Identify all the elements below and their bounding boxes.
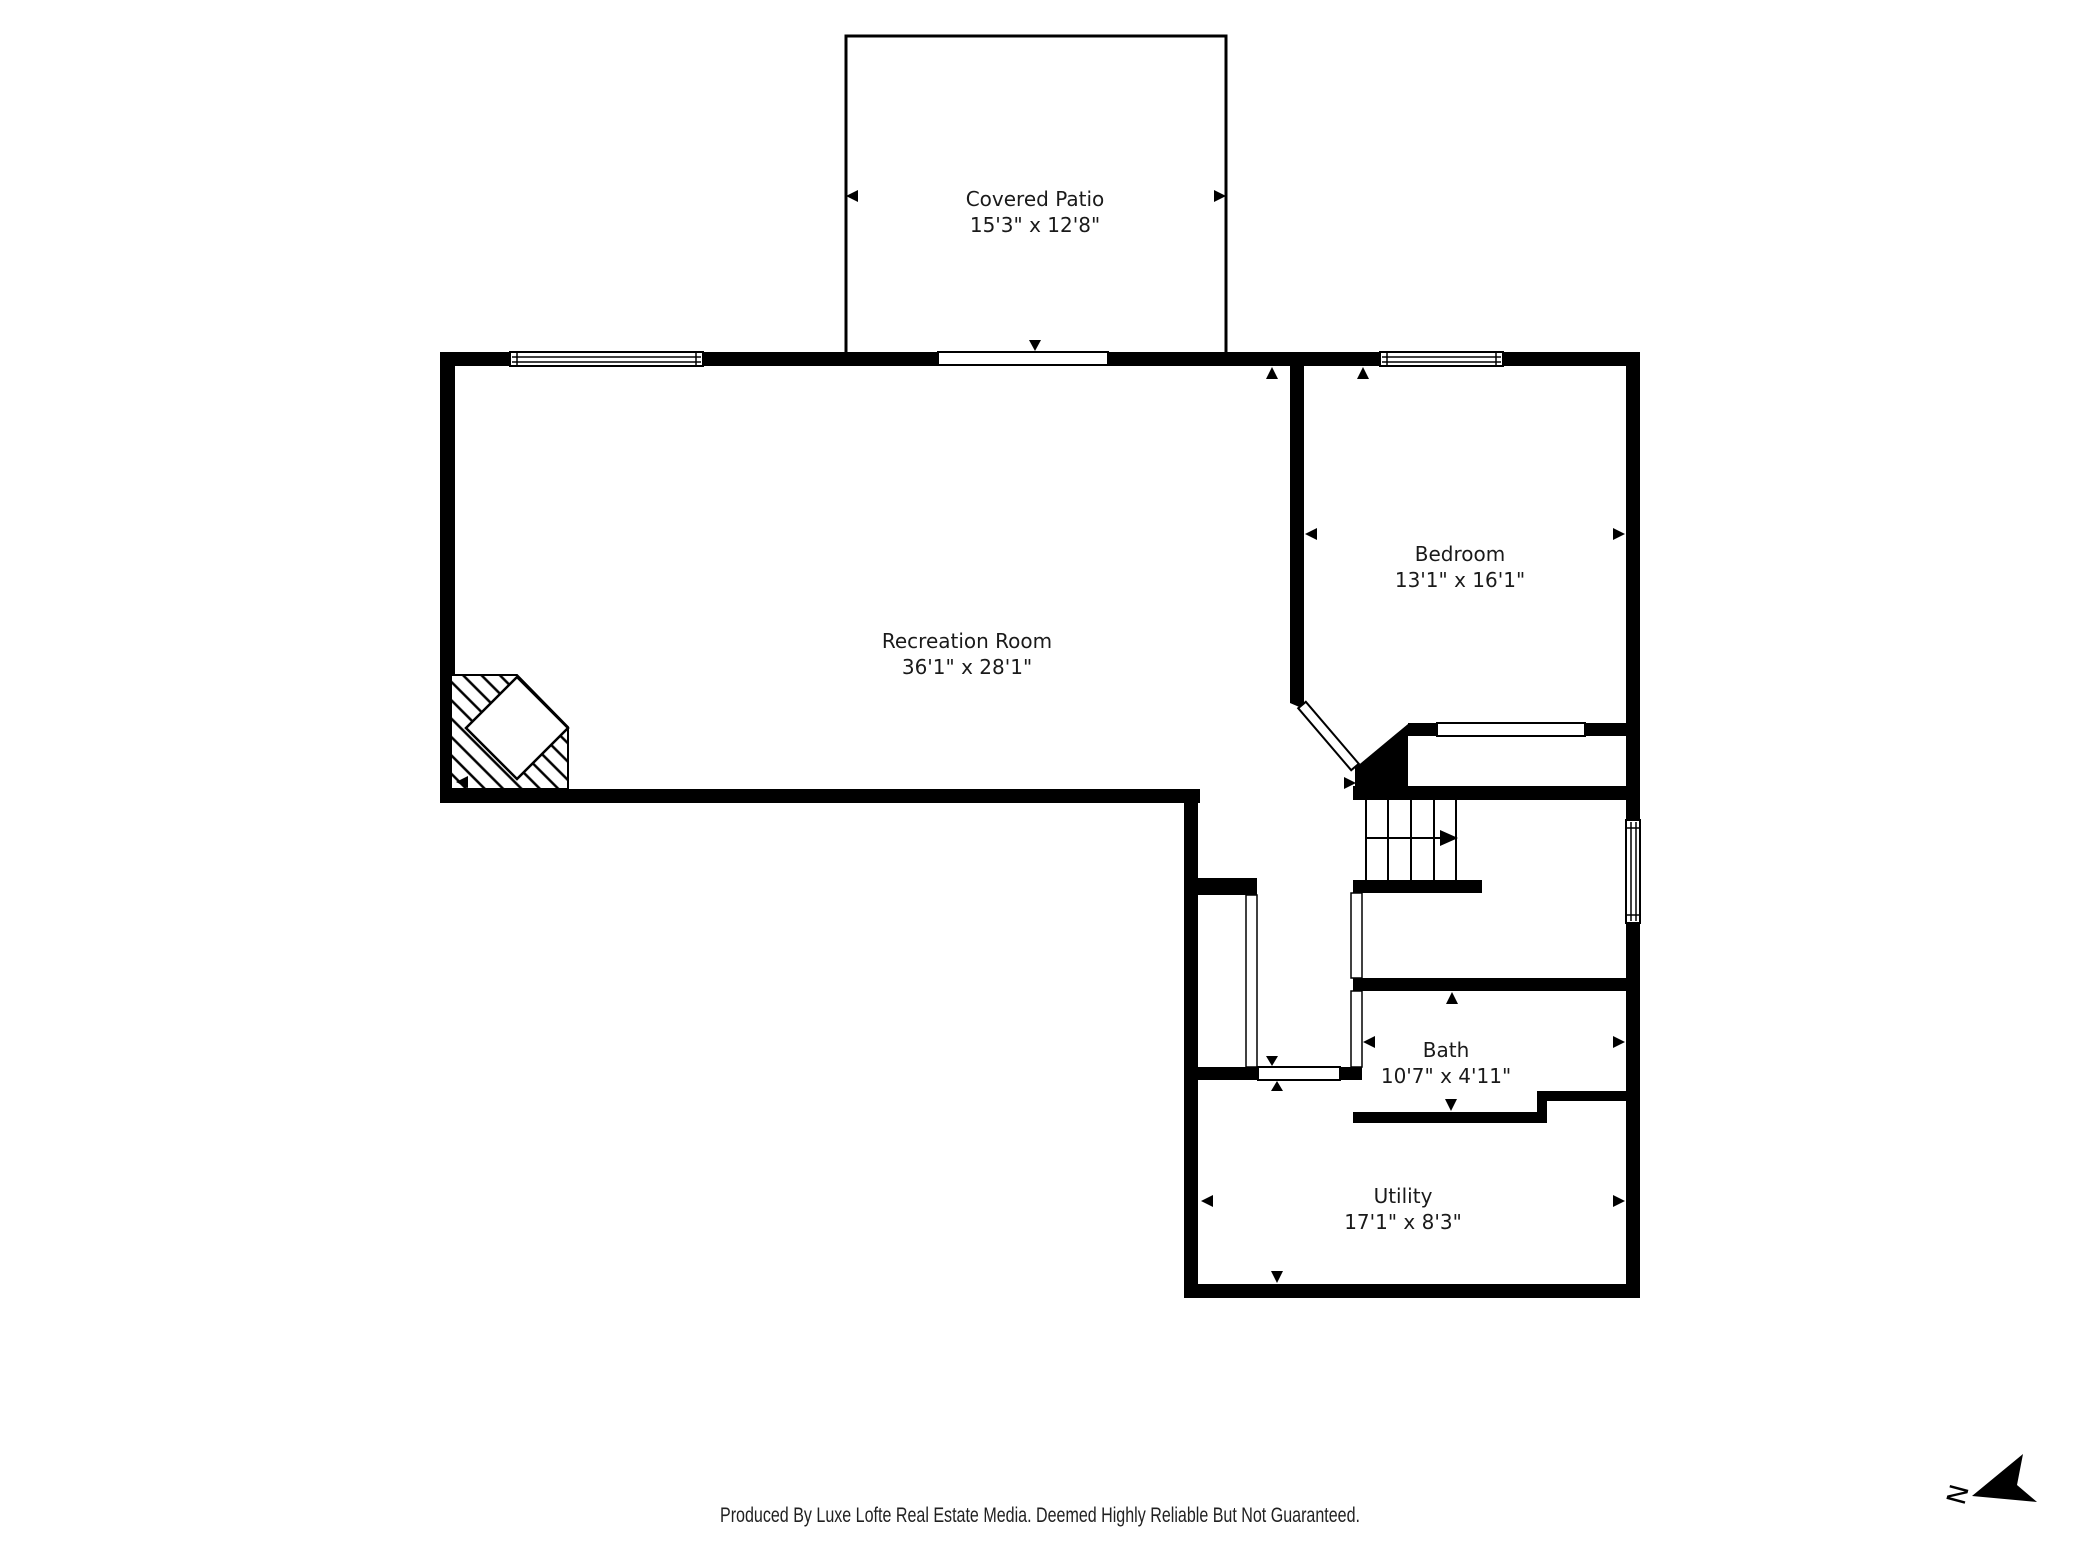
room-dims-bedroom: 13'1" x 16'1": [1395, 568, 1525, 592]
wall-utility-top-left: [1184, 1067, 1258, 1080]
wall-top-4: [1503, 352, 1640, 366]
bedroom-door-opening: [1298, 702, 1359, 770]
window-icon: [510, 352, 703, 366]
footer-credit-text: Produced By Luxe Lofte Real Estate Media…: [720, 1504, 1360, 1527]
room-dims-recreation-room: 36'1" x 28'1": [902, 655, 1032, 679]
wall-bedroom-bottom: [1353, 786, 1640, 800]
wall-right-upper: [1626, 352, 1640, 820]
wall-top-2: [703, 352, 938, 366]
dim-arrow-right: [1613, 1036, 1625, 1048]
window-icon: [1380, 352, 1503, 366]
thin-wall-stair-hall-upper: [1351, 893, 1362, 978]
room-dims-bath: 10'7" x 4'11": [1381, 1064, 1511, 1088]
dim-arrow-up: [1446, 992, 1458, 1004]
dim-arrow-right: [1214, 190, 1226, 202]
room-dims-covered-patio: 15'3" x 12'8": [970, 213, 1100, 237]
dim-arrow-right: [1613, 1195, 1625, 1207]
wall-rec-bottom: [440, 789, 1200, 803]
wall-utility-top-right: [1340, 1067, 1362, 1080]
fireplace-icon: [451, 675, 568, 789]
room-label-utility: Utility: [1374, 1184, 1433, 1208]
windows-and-openings: [510, 352, 1640, 1080]
room-label-bath: Bath: [1423, 1038, 1470, 1062]
wall-bedroom-left: [1290, 366, 1304, 700]
patio-door-opening: [938, 352, 1108, 365]
wall-utility-bottom: [1184, 1284, 1640, 1298]
north-arrow-icon: N: [1939, 1454, 2037, 1507]
dim-arrow-left: [1201, 1195, 1213, 1207]
stairs-icon: [1366, 800, 1458, 880]
dim-arrow-left: [846, 190, 858, 202]
closet-door-opening: [1437, 723, 1585, 736]
dim-arrow-up: [1357, 367, 1369, 379]
wall-closet-stub-right: [1585, 723, 1626, 736]
room-label-covered-patio: Covered Patio: [966, 187, 1105, 211]
floor-plan-page: Covered Patio 15'3" x 12'8" Recreation R…: [0, 0, 2080, 1560]
north-arrow-label: N: [1939, 1481, 1973, 1508]
dim-arrow-down: [1445, 1099, 1457, 1111]
wall-stairs-bottom: [1353, 880, 1482, 893]
thin-walls: [1246, 893, 1362, 1067]
thin-wall-corridor: [1246, 895, 1257, 1067]
room-dims-utility: 17'1" x 8'3": [1344, 1210, 1462, 1234]
thin-wall-bath-left: [1351, 991, 1362, 1067]
utility-door-opening: [1258, 1067, 1340, 1080]
wall-top-3: [1108, 352, 1380, 366]
dim-arrow-left: [1305, 528, 1317, 540]
room-label-recreation-room: Recreation Room: [882, 629, 1052, 653]
dim-arrow-left: [1363, 1036, 1375, 1048]
wall-bath-top: [1353, 978, 1640, 991]
room-label-bedroom: Bedroom: [1415, 542, 1505, 566]
wall-corridor-left: [1184, 789, 1198, 1298]
dim-arrow-up: [1266, 367, 1278, 379]
dim-arrow-down: [1029, 340, 1041, 351]
door-marker-down: [1266, 1056, 1278, 1066]
wall-closet-stub-left: [1408, 723, 1437, 736]
dim-arrow-down: [1271, 1271, 1283, 1283]
floor-plan-canvas: Covered Patio 15'3" x 12'8" Recreation R…: [0, 0, 2080, 1560]
dim-arrow-right: [1613, 528, 1625, 540]
wall-bath-bottom: [1353, 1091, 1640, 1123]
walls: [440, 352, 1640, 1298]
wall-hall-stub: [1198, 878, 1257, 895]
window-icon: [1626, 820, 1640, 923]
door-marker-up: [1271, 1081, 1283, 1091]
